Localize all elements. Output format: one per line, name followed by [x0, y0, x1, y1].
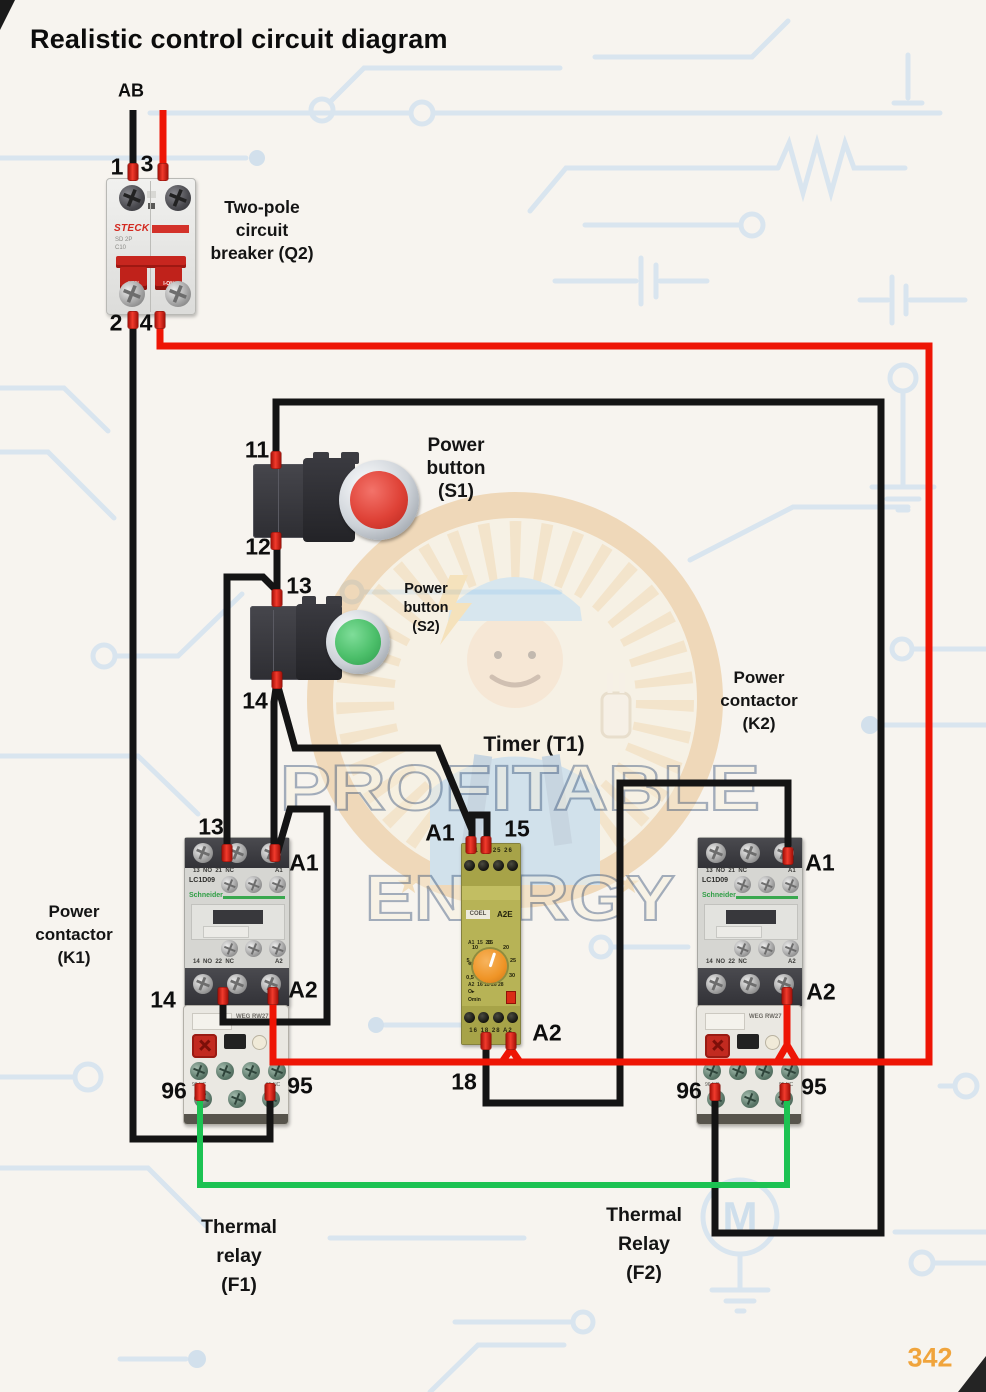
wire-connector	[782, 988, 792, 1005]
f1-label-plate	[192, 1013, 232, 1030]
caption-line: (S2)	[403, 618, 448, 637]
k1-window	[213, 910, 263, 924]
breaker-detail	[147, 191, 156, 198]
breaker-terminal-screw-2	[119, 281, 145, 307]
wire-connector	[481, 837, 491, 854]
source-label-ab: AB	[118, 81, 144, 102]
caption-line: (S1)	[426, 480, 485, 503]
k1-notch	[203, 926, 249, 938]
timer-diagram-row2: A2 16 18 26 28	[468, 982, 504, 989]
caption-power-contactor-k2: Power contactor (K2)	[720, 666, 797, 735]
caption-line: (K2)	[720, 712, 797, 735]
caption-line: Power	[720, 666, 797, 689]
caption-thermal-relay-f2: Thermal Relay (F2)	[606, 1201, 682, 1288]
circuit-breaker-q2: STECK SD 2P C10 I-ON I-ON	[106, 178, 196, 315]
timer-model: A2E	[497, 910, 513, 919]
breaker-red-band	[152, 225, 189, 233]
f2-screw	[729, 1062, 747, 1080]
page-number: 342	[907, 1343, 952, 1374]
caption-line: Relay	[606, 1230, 682, 1259]
f1-foot	[184, 1114, 288, 1124]
caption-breaker-q2: Two-pole circuit breaker (Q2)	[210, 196, 313, 265]
corner-mark-top-left	[0, 0, 15, 30]
k2-aux-screw	[782, 876, 799, 893]
f2-test-switch[interactable]	[737, 1034, 759, 1049]
timer-top-terminals	[462, 860, 520, 871]
f2-brand: WEG RW27	[749, 1014, 782, 1020]
terminal-label-k1-13: 13	[198, 814, 224, 841]
f1-screw	[190, 1062, 208, 1080]
f1-screw	[242, 1062, 260, 1080]
wire-connector	[710, 1084, 720, 1101]
s2-green-button-face[interactable]	[335, 619, 381, 665]
breaker-seam	[150, 181, 151, 312]
terminal-label-q2-3: 3	[141, 151, 154, 178]
wire-connector	[265, 1084, 275, 1101]
k1-aux-screw	[269, 876, 286, 893]
terminal-label-f1-96: 96	[161, 1078, 187, 1105]
terminal-label-f2-96: 96	[676, 1078, 702, 1105]
k2-aux-top-a1-label: A1	[788, 868, 796, 874]
caption-line: Two-pole	[210, 196, 313, 219]
wire-connector	[780, 1084, 790, 1101]
timer-dial-label: 30	[509, 973, 515, 979]
page-title: Realistic control circuit diagram	[30, 24, 448, 55]
terminal-label-s2-13: 13	[286, 573, 312, 600]
wire-connector	[268, 988, 278, 1005]
timer-bottom-terminals	[462, 1012, 520, 1023]
k1-aux-screw	[269, 940, 286, 957]
terminal-label-k1-a1: A1	[289, 850, 318, 877]
terminal-label-q2-1: 1	[111, 154, 124, 181]
k1-brand: Schneider	[189, 892, 223, 899]
timer-dial-label: 15	[487, 940, 493, 946]
wire-connector	[158, 164, 168, 181]
timer-dial-label: 20	[503, 945, 509, 951]
caption-line: button	[403, 599, 448, 618]
caption-line: Power	[426, 434, 485, 457]
diagram-page: M ★ ★ PROFITABLE ENERGY	[0, 0, 986, 1392]
terminal-label-k2-a1: A1	[805, 850, 834, 877]
wire-connector	[128, 312, 138, 329]
f1-adjust-dial[interactable]	[192, 1034, 217, 1058]
timer-led	[506, 991, 516, 1004]
f2-screw	[781, 1062, 799, 1080]
k2-aux-screw	[758, 876, 775, 893]
terminal-label-timer-15: 15	[504, 816, 530, 843]
k2-aux-screw	[758, 940, 775, 957]
k2-model: LC1D09	[702, 877, 728, 884]
k1-aux-screw	[245, 940, 262, 957]
timer-indicator-2: Omin	[468, 997, 481, 1003]
k2-aux-screw	[734, 876, 751, 893]
k2-power-screw	[706, 843, 726, 863]
f2-label-plate	[705, 1013, 745, 1030]
terminal-label-timer-a1: A1	[425, 820, 454, 847]
k2-notch	[716, 926, 762, 938]
terminal-label-q2-4: 4	[140, 310, 153, 337]
k1-aux-bottom-labels: 14 NO 22 NC	[193, 959, 234, 965]
terminal-label-timer-18: 18	[451, 1069, 477, 1096]
f1-screw	[268, 1062, 286, 1080]
k2-aux-bottom-a2-label: A2	[788, 959, 796, 965]
s1-contact-block	[253, 464, 309, 538]
terminal-label-k1-14: 14	[150, 987, 176, 1014]
terminal-label-q2-2: 2	[110, 310, 123, 337]
svg-text:PROFITABLE: PROFITABLE	[280, 752, 760, 824]
k1-aux-top-labels: 13 NO 21 NC	[193, 868, 234, 874]
wire-connector	[222, 845, 232, 862]
timer-dial-label: 10	[472, 945, 478, 951]
terminal-label-s1-11: 11	[245, 437, 269, 464]
k1-power-screw	[193, 843, 213, 863]
wire-connector	[272, 590, 282, 607]
caption-line: breaker (Q2)	[210, 242, 313, 265]
caption-line: contactor	[35, 923, 112, 946]
wire-connector	[783, 848, 793, 865]
k2-power-screw	[706, 974, 726, 994]
k2-aux-screw	[782, 940, 799, 957]
caption-line: (F1)	[201, 1271, 277, 1300]
k1-brand-line	[223, 896, 285, 899]
timer-t1: A1 15 25 26 COEL A2E A1 15 25 ⊜⎆ ∕⋮ ∕ A2…	[461, 843, 521, 1045]
caption-line: Thermal	[201, 1213, 277, 1242]
s1-red-button-face[interactable]	[350, 471, 408, 529]
caption-timer-t1: Timer (T1)	[483, 733, 584, 757]
s2-contact-block	[250, 606, 302, 680]
thermal-relay-f1: WEG RW27 96 NC 95 NC	[183, 1005, 289, 1125]
terminal-label-timer-a2: A2	[532, 1020, 561, 1047]
wire-connector	[466, 837, 476, 854]
svg-text:★: ★	[396, 868, 421, 899]
caption-line: contactor	[720, 689, 797, 712]
caption-line: Power	[403, 580, 448, 599]
caption-line: Power	[35, 900, 112, 923]
caption-line: relay	[201, 1242, 277, 1271]
f1-test-switch[interactable]	[224, 1034, 246, 1049]
corner-mark-bottom-right	[958, 1356, 986, 1392]
timer-rotary-dial[interactable]	[473, 949, 507, 983]
f2-screw	[703, 1062, 721, 1080]
f2-adjust-dial[interactable]	[705, 1034, 730, 1058]
timer-indicator-1: O▸	[468, 989, 474, 995]
timer-dial-label: 0,5	[466, 975, 474, 981]
caption-line: circuit	[210, 219, 313, 242]
thermal-relay-f2: WEG RW27 96 NC 95 NC	[696, 1005, 802, 1125]
wire-connector	[271, 452, 281, 469]
wire-connector	[272, 672, 282, 689]
f2-screw	[755, 1062, 773, 1080]
k2-window	[726, 910, 776, 924]
terminal-label-k1-a2: A2	[288, 977, 317, 1004]
k1-aux-bottom-a2-label: A2	[275, 959, 283, 965]
caption-thermal-relay-f1: Thermal relay (F1)	[201, 1213, 277, 1300]
motor-symbol-letter: M	[723, 1193, 758, 1240]
caption-line: button	[426, 457, 485, 480]
timer-dial-label: 5	[466, 958, 469, 964]
wire-connector	[506, 1033, 516, 1050]
f1-reset-button[interactable]	[252, 1035, 267, 1050]
caption-line: (F2)	[606, 1259, 682, 1288]
k1-aux-screw	[245, 876, 262, 893]
contactor-k1: 13 NO 21 NC A1 LC1D09 Schneider 14 NO 22…	[184, 837, 290, 1007]
f1-screw	[216, 1062, 234, 1080]
k2-brand-line	[736, 896, 798, 899]
k1-power-screw	[193, 974, 213, 994]
terminal-label-s1-12: 12	[245, 534, 271, 561]
k2-aux-bottom-labels: 14 NO 22 NC	[706, 959, 747, 965]
wire-connector	[218, 988, 228, 1005]
svg-text:★: ★	[616, 868, 641, 899]
f2-reset-button[interactable]	[765, 1035, 780, 1050]
caption-line: Thermal	[606, 1201, 682, 1230]
k2-power-screw	[740, 974, 760, 994]
caption-power-button-s1: Power button (S1)	[426, 434, 485, 503]
breaker-rating: C10	[115, 245, 126, 251]
caption-power-contactor-k1: Power contactor (K1)	[35, 900, 112, 969]
k1-aux-screw	[221, 876, 238, 893]
k2-brand: Schneider	[702, 892, 736, 899]
k1-model: LC1D09	[189, 877, 215, 884]
wire-connector	[271, 533, 281, 550]
k1-power-screw	[227, 974, 247, 994]
wire-connector	[481, 1033, 491, 1050]
wire-connector	[270, 845, 280, 862]
terminal-label-s2-14: 14	[242, 688, 268, 715]
caption-power-button-s2: Power button (S2)	[403, 580, 448, 637]
terminal-label-k2-a2: A2	[806, 979, 835, 1006]
timer-dial-label: 25	[510, 958, 516, 964]
k1-aux-top-a1-label: A1	[275, 868, 283, 874]
wire-connector	[128, 164, 138, 181]
f2-screw	[741, 1090, 759, 1108]
timer-brand: COEL	[466, 910, 490, 919]
caption-line: (K1)	[35, 946, 112, 969]
push-button-s2[interactable]	[250, 594, 382, 689]
terminal-label-f1-95: 95	[287, 1073, 313, 1100]
k1-aux-screw	[221, 940, 238, 957]
k2-aux-top-labels: 13 NO 21 NC	[706, 868, 747, 874]
breaker-terminal-screw-3	[165, 185, 191, 211]
breaker-brand: STECK	[114, 223, 149, 234]
breaker-terminal-screw-4	[165, 281, 191, 307]
wire-connector	[155, 312, 165, 329]
f1-screw	[228, 1090, 246, 1108]
timer-step	[462, 886, 520, 900]
terminal-label-f2-95: 95	[801, 1074, 827, 1101]
k2-aux-screw	[734, 940, 751, 957]
breaker-model: SD 2P	[115, 237, 132, 243]
f1-brand: WEG RW27	[236, 1014, 269, 1020]
wire-connector	[195, 1084, 205, 1101]
breaker-terminal-screw-1	[119, 185, 145, 211]
f2-foot	[697, 1114, 801, 1124]
k2-power-screw	[740, 843, 760, 863]
